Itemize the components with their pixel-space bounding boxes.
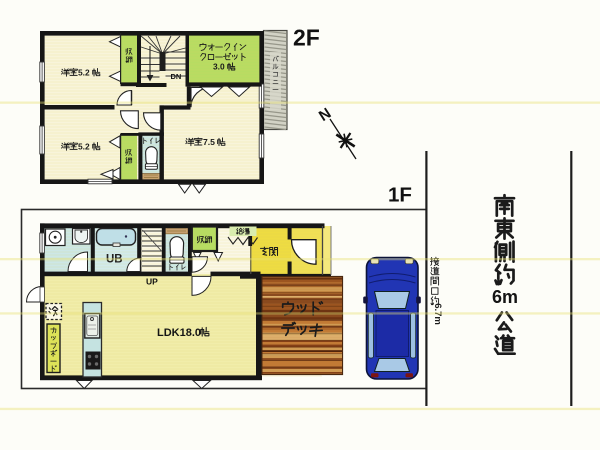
svg-text:5.2: 5.2 xyxy=(78,67,90,77)
svg-text:DN: DN xyxy=(171,72,182,81)
svg-text:LDK18.0: LDK18.0 xyxy=(157,327,201,339)
svg-text:1F: 1F xyxy=(388,184,412,207)
svg-text:5.2: 5.2 xyxy=(78,141,90,151)
svg-text:2F: 2F xyxy=(293,25,320,51)
svg-text:7.5: 7.5 xyxy=(203,137,215,147)
svg-text:6m: 6m xyxy=(492,287,518,307)
svg-text:UP: UP xyxy=(146,277,158,287)
svg-text:3.0: 3.0 xyxy=(213,62,225,72)
